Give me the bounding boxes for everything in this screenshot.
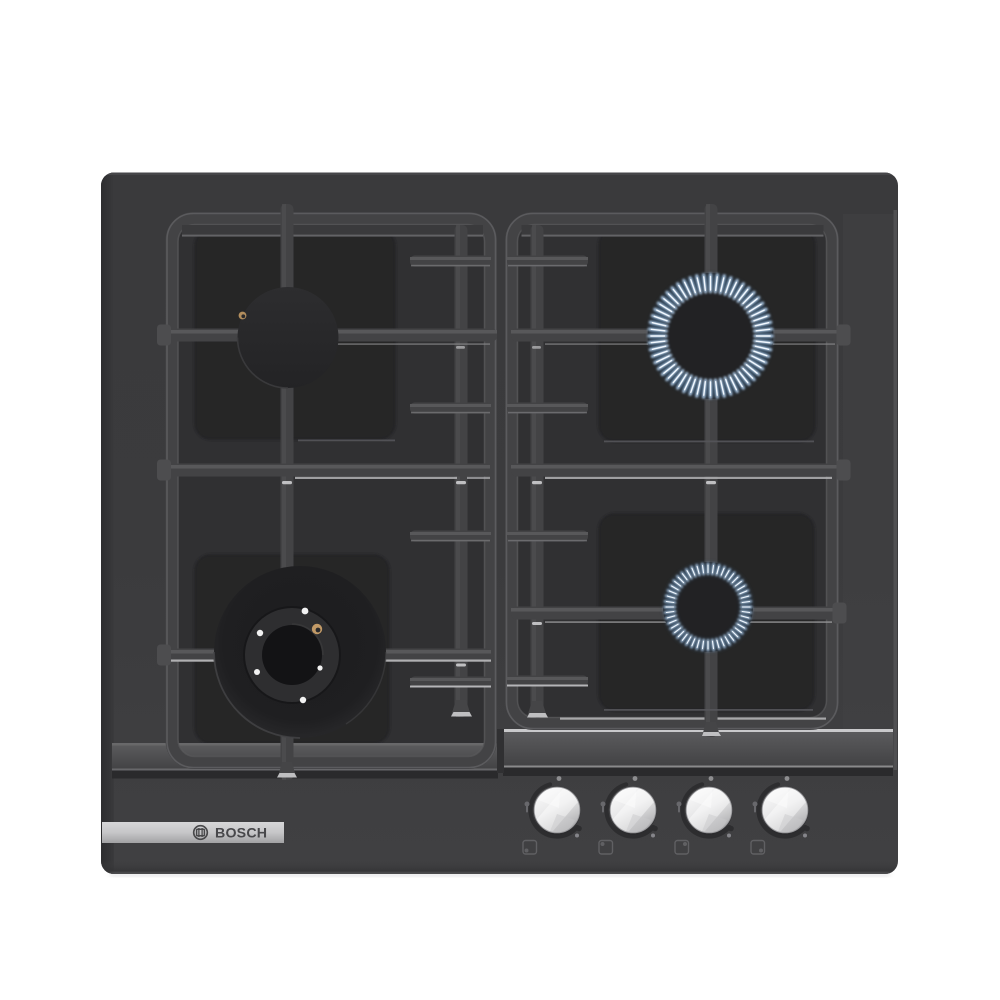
svg-text:BOSCH: BOSCH: [215, 826, 267, 842]
